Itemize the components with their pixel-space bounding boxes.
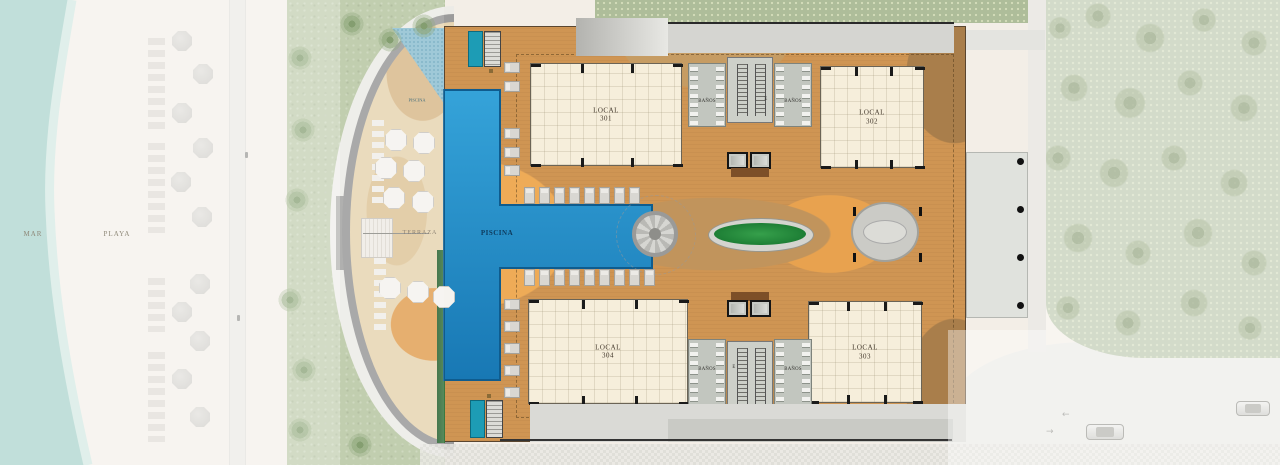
beach-umbrella-icon [190,331,210,351]
paved-hatch-strip [420,444,1280,465]
pool-stairs [486,400,503,438]
survey-tick [919,253,922,262]
elevator [727,300,748,317]
direction-arrow-icon: ← [1062,411,1070,420]
resort-floor-plan: LOCAL 301 LOCAL 302 LOCAL 304 LOCAL 303 … [0,0,1280,465]
tree-icon [1178,287,1210,319]
palm-tree-icon [377,27,403,53]
jacuzzi [468,31,483,67]
lounge-chair [504,128,520,139]
beach-umbrella-icon [190,274,210,294]
tree-icon [1133,21,1167,55]
bathroom-room: BAÑOS [688,339,726,405]
beach-sunbed-row [148,278,165,332]
unit-local-304: LOCAL 304 [528,299,688,404]
tree-icon [1058,72,1090,104]
unit-number: 304 [602,352,614,360]
car [1086,424,1124,440]
tree-icon [1043,143,1073,173]
palm-tree-icon [339,11,365,37]
unit-number: 301 [600,115,612,123]
palm-tree-icon [411,13,437,39]
wall-pier [890,160,893,169]
unit-name: LOCAL [595,343,621,351]
wall-pier [913,302,923,305]
wall-pier [890,67,893,76]
palm-tree-icon [287,417,313,443]
bathroom-label: BAÑOS [784,99,801,104]
tree-icon [1236,314,1264,342]
tree-icon [1239,28,1269,58]
wall-pier [884,395,887,404]
lounge-chair [554,187,565,204]
wood-deck [361,218,393,258]
wall-pier [531,164,541,167]
wall-pier [631,158,634,167]
sea-label: MAR [24,230,43,238]
unit-local-301: LOCAL 301 [530,63,682,166]
wall-pier [679,300,689,303]
unit-name: LOCAL [859,108,885,116]
beach-sunbed-row [148,143,165,233]
wall-pier [847,395,850,404]
oval-planter-green [714,223,806,245]
tree-icon [1061,221,1095,255]
lounge-chair [614,187,625,204]
survey-tick [853,253,856,262]
beach-sunbed-row [148,38,165,130]
unit-name: LOCAL [593,106,619,114]
lounge-chair [504,365,520,376]
wall-pier [855,160,858,169]
lounge-chair [569,187,580,204]
survey-tick [853,207,856,216]
bathroom-label: BAÑOS [698,99,715,104]
lounge-chair [569,269,580,286]
stair-core: E [727,57,773,123]
lounge-chair [599,187,610,204]
terrace-label: TERRAZA [403,230,438,236]
ocean-water [0,0,110,465]
forest-area [1046,0,1280,358]
tree-icon [1112,85,1148,121]
unit-local-302: LOCAL 302 [820,66,924,168]
pool-equipment-icon [487,394,491,398]
column-dot [1017,158,1024,165]
person-icon [245,152,248,158]
side-path [1028,0,1046,352]
lounge-chair [504,299,520,310]
beach-umbrella-icon [190,407,210,427]
unit-local-303: LOCAL 303 [808,301,922,403]
car [1236,401,1270,416]
beach-label: PLAYA [104,230,131,238]
wall-pier [855,67,858,76]
elevator-label: E [732,365,735,370]
elevator [750,152,771,169]
pool-equipment-icon [489,69,493,73]
direction-arrow-icon: → [1046,428,1054,437]
wall-pier [821,166,831,169]
tree-icon [1097,156,1131,190]
beach-umbrella-icon [172,31,192,51]
tree-icon [1181,216,1215,250]
tree-icon [1159,143,1189,173]
top-walkway [668,22,954,53]
wall-pier [631,64,634,73]
lounge-chair [504,321,520,332]
wall-pier [581,64,584,73]
lounge-chair [524,187,535,204]
lounge-chair [504,165,520,176]
beach-umbrella-icon [193,138,213,158]
beach-umbrella-icon [172,369,192,389]
lounge-chair [629,269,640,286]
lounge-chair [554,269,565,286]
wall-pier [884,302,887,311]
lounge-chair [584,187,595,204]
lounge-chair [504,81,520,92]
access-ramp [576,18,668,56]
beach-umbrella-icon [193,64,213,84]
boardwalk-path [229,0,246,465]
beach-umbrella-icon [172,302,192,322]
palm-tree-icon [347,432,373,458]
bathroom-room: BAÑOS [774,63,812,127]
survey-tick [919,207,922,216]
tree-icon [1047,15,1073,41]
tree-icon [1239,248,1269,278]
unit-name: LOCAL [852,343,878,351]
palm-tree-icon [291,357,317,383]
wall-pier [531,64,541,67]
pool-label: PISCINA [481,229,513,237]
elevator [727,152,748,169]
lounge-chair [584,269,595,286]
column-dot [1017,302,1024,309]
lounge-chair [614,269,625,286]
lounge-chair [539,269,550,286]
spiral-stair [632,211,678,257]
service-porch [966,152,1028,318]
elevator-landing [731,168,769,177]
wall-pier [635,300,638,309]
wall-pier [821,67,831,70]
beach-umbrella-icon [192,207,212,227]
wall-pier [529,300,539,303]
wall-pier [915,67,925,70]
bathroom-room: BAÑOS [688,63,726,127]
building-edge-line [500,439,952,441]
beach-umbrella-icon [172,103,192,123]
tree-icon [1083,1,1113,31]
tree-icon [1123,238,1153,268]
lounge-chair [629,187,640,204]
unit-number: 302 [866,117,878,125]
wall-pier [673,164,683,167]
tree-icon [1190,6,1218,34]
stair-core: E [727,341,773,413]
unit-number: 303 [859,352,871,360]
jacuzzi [470,400,485,438]
wall-pier [581,158,584,167]
elevator-label: E [765,97,768,102]
tree-icon [1228,92,1260,124]
palm-tree-icon [284,187,310,213]
right-walkway [953,30,1045,50]
kids-pool-label: PISCINA [408,98,425,103]
bathroom-room: BAÑOS [774,339,812,405]
column-dot [1017,254,1024,261]
lounge-chair [504,62,520,73]
lounge-chair [504,387,520,398]
palm-tree-icon [277,287,303,313]
oval-lounge-seating [851,202,919,262]
lounge-chair [599,269,610,286]
lounge-chair [504,343,520,354]
wall-pier [582,300,585,309]
wall-pier [847,302,850,311]
lounge-chair [644,269,655,286]
bathroom-label: BAÑOS [698,367,715,372]
palm-tree-icon [287,45,313,71]
lounge-chair [539,187,550,204]
beach-umbrella-icon [171,172,191,192]
pool-stairs [484,31,501,67]
wall-pier [809,302,819,305]
tree-icon [1218,167,1250,199]
lounge-chair [524,269,535,286]
elevator [750,300,771,317]
beach-sunbed-row [148,352,165,442]
wall-pier [673,64,683,67]
lounge-chair [504,147,520,158]
column-dot [1017,206,1024,213]
tree-icon [1113,308,1143,338]
person-icon [237,315,240,321]
wall-pier [915,166,925,169]
tree-icon [1054,294,1082,322]
bathroom-label: BAÑOS [784,367,801,372]
tree-icon [1175,68,1205,98]
palm-tree-icon [290,117,316,143]
